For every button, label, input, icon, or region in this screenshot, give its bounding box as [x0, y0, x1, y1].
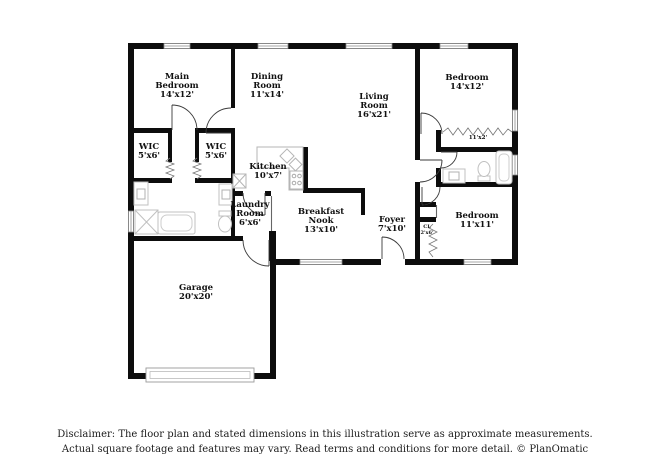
room-dims: 11'x11'	[446, 221, 508, 230]
room-label-closet-11x2: 11'x2'	[456, 136, 500, 142]
room-label-foyer: Foyer 7'x10'	[370, 216, 414, 234]
room-dims: 11'x2'	[456, 136, 500, 142]
disclaimer: Disclaimer: The floor plan and stated di…	[0, 427, 650, 457]
room-dims: 10'x7'	[241, 172, 295, 181]
room-name: Laundry Room	[223, 201, 277, 219]
room-dims: 2'x2'	[413, 205, 437, 210]
room-name: Main Bedroom	[147, 73, 207, 91]
room-name: Breakfast Nook	[289, 208, 353, 226]
room-label-laundry-room: Laundry Room 6'x6'	[223, 201, 277, 227]
master-bath-fixtures	[134, 182, 232, 234]
hall-bath-fixtures	[443, 151, 512, 184]
room-label-wic-left: WIC 5'x6'	[131, 143, 167, 161]
sink-icon	[449, 172, 459, 180]
front-door-opening	[381, 259, 405, 266]
floor-plan-page: Main Bedroom 14'x12' Dining Room 11'x14'…	[0, 0, 650, 473]
room-dims: 20'x20'	[169, 293, 223, 302]
disclaimer-line-2: Actual square footage and features may v…	[0, 442, 650, 457]
room-dims: 16'x21'	[350, 111, 398, 120]
room-dims: 6'x6'	[223, 219, 277, 228]
room-label-breakfast-nook: Breakfast Nook 13'x10'	[289, 208, 353, 234]
room-label-garage: Garage 20'x20'	[169, 284, 223, 302]
room-label-cl-closet: CL 2'x6'	[415, 225, 439, 236]
room-label-closet-2x2: 2'x2'	[413, 205, 437, 210]
room-label-bedroom-lower: Bedroom 11'x11'	[446, 212, 508, 230]
room-label-kitchen: Kitchen 10'x7'	[241, 163, 295, 181]
room-label-wic-right: WIC 5'x6'	[198, 143, 234, 161]
front-door-icon	[382, 237, 404, 259]
garage-door	[146, 368, 254, 382]
room-name: Living Room	[350, 93, 398, 111]
room-label-bedroom-right: Bedroom 14'x12'	[436, 74, 498, 92]
disclaimer-line-1: Disclaimer: The floor plan and stated di…	[0, 427, 650, 442]
room-name: Dining Room	[243, 73, 291, 91]
room-dims: 11'x14'	[243, 91, 291, 100]
garage-entry-door-icon	[243, 240, 269, 266]
sink-icon	[137, 189, 145, 199]
floor-plan-canvas	[0, 0, 650, 473]
room-dims: 14'x12'	[436, 83, 498, 92]
bathroom-door-icon	[441, 152, 457, 168]
main-bedroom-hall-door-icon	[172, 105, 197, 130]
room-dims: 13'x10'	[289, 226, 353, 235]
room-label-dining-room: Dining Room 11'x14'	[243, 73, 291, 99]
room-dims: 5'x6'	[131, 152, 167, 161]
room-dims: 7'x10'	[370, 225, 414, 234]
room-label-main-bedroom: Main Bedroom 14'x12'	[147, 73, 207, 99]
room-dims: 14'x12'	[147, 91, 207, 100]
sink-icon	[222, 190, 230, 199]
toilet-icon	[478, 162, 490, 177]
room-dims: 2'x6'	[415, 231, 439, 237]
room-dims: 5'x6'	[198, 152, 234, 161]
closet-11x2-door-icon	[443, 128, 512, 135]
room-label-living-room: Living Room 16'x21'	[350, 93, 398, 119]
